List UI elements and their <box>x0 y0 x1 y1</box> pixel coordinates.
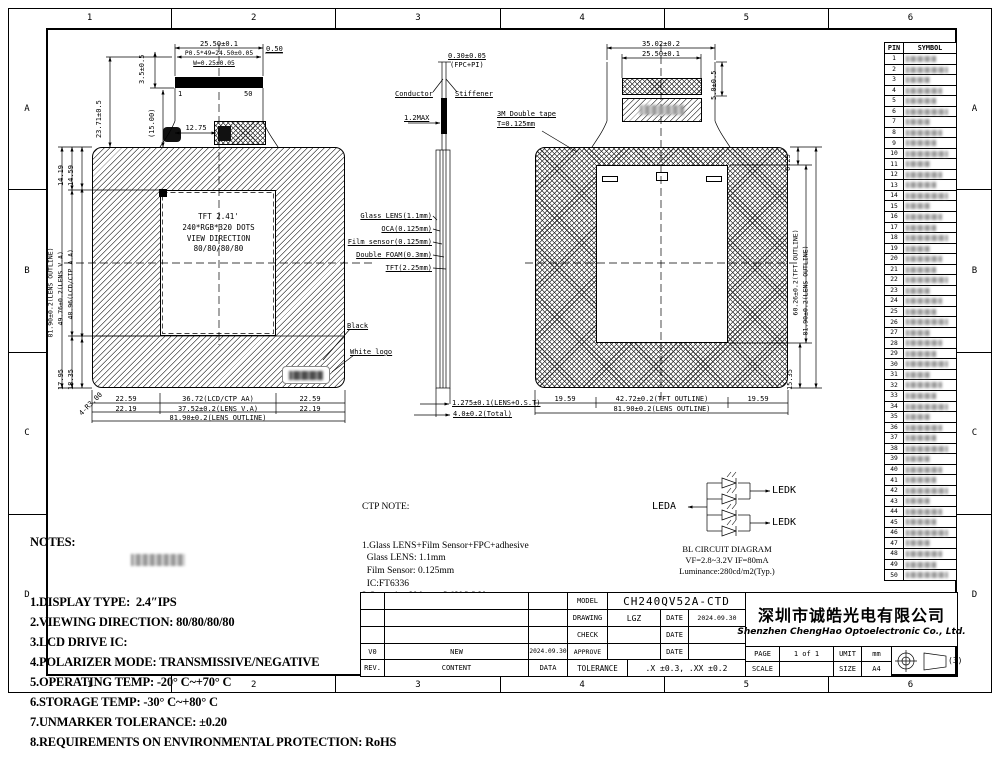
pin-header-cell: PIN <box>885 43 904 53</box>
pin-symbol-redacted-blur <box>906 172 942 178</box>
pin-symbol-cell <box>904 317 956 327</box>
scale-value-cell <box>779 661 834 677</box>
dim-rear-bottom-outline: 81.90±0.2(LENS OUTLINE) <box>614 405 711 413</box>
pin-number: 16 <box>885 212 904 222</box>
pin-row: 22 <box>885 275 956 286</box>
pin-symbol-redacted-blur <box>906 67 948 73</box>
pin-symbol-redacted-blur <box>906 140 936 146</box>
dim-rear-right-top: 6.25 <box>784 154 792 171</box>
rev-table-cell-empty <box>384 592 529 610</box>
layer-callout-label: Glass LENS(1.1mm) <box>330 210 432 223</box>
bl-circuit-spec: VF=2.8~3.2V IF=80mA <box>685 555 768 566</box>
pin-number: 32 <box>885 380 904 390</box>
pin-number: 19 <box>885 244 904 254</box>
pin-symbol-cell <box>904 86 956 96</box>
engineering-drawing-sheet: { "frame": { "cols": ["1","2","3","4","5… <box>0 0 1000 701</box>
pin-number: 22 <box>885 275 904 285</box>
pin-symbol-cell <box>904 538 956 548</box>
pin-row: 15 <box>885 201 956 212</box>
pin-symbol-redacted-blur <box>906 372 930 378</box>
rev-table-cell-empty <box>384 609 529 627</box>
pin-number: 35 <box>885 412 904 422</box>
pin-symbol-redacted-blur <box>906 414 930 420</box>
pin-row: 1 <box>885 54 956 65</box>
front-panel-text: TFT 2.41'240*RGB*320 DOTSVIEW DIRECTION8… <box>161 212 276 255</box>
rev-content-cell: NEW <box>384 643 529 660</box>
dim-side-top: 0.30±0.05 <box>448 52 486 60</box>
dim-rear-fpc-h: 5.0±0.5 <box>710 71 718 101</box>
dim-bottom-r2c: 37.52±0.2(LENS V.A) <box>178 405 258 413</box>
dim-top-left-2: 14.59 <box>67 165 75 186</box>
pin-symbol-cell <box>904 349 956 359</box>
dim-top-width: 25.50±0.1 <box>200 40 238 48</box>
dim-side-bottom2: 4.0±0.2(Total) <box>453 410 512 418</box>
note-line: 7.UNMARKER TOLERANCE: ±0.20 <box>30 712 396 732</box>
pin-number: 43 <box>885 496 904 506</box>
pin-row: 19 <box>885 244 956 255</box>
pin-number: 28 <box>885 338 904 348</box>
pin-row: 28 <box>885 338 956 349</box>
pin-symbol-redacted-blur <box>906 256 942 262</box>
pin-row: 30 <box>885 359 956 370</box>
pin-row: 14 <box>885 191 956 202</box>
pin-row: 2 <box>885 65 956 76</box>
pin-symbol-cell <box>904 286 956 296</box>
dim-fpc-h1: 3.5±0.5 <box>138 55 146 85</box>
pin-symbol-cell <box>904 465 956 475</box>
drawing-date-cell: 2024.09.30 <box>688 609 746 627</box>
pin-symbol-redacted-blur <box>906 235 948 241</box>
pin-first-label: 1 <box>178 90 182 98</box>
tape-note-line1: 3M Double tape <box>497 110 556 118</box>
ctp-note-title: CTP NOTE: <box>362 501 529 514</box>
pin-number: 10 <box>885 149 904 159</box>
content-header-cell: CONTENT <box>384 659 529 677</box>
pin-number: 18 <box>885 233 904 243</box>
pin-symbol-redacted-blur <box>906 203 930 209</box>
pin-row: 33 <box>885 391 956 402</box>
rev-table-cell-empty <box>528 626 568 644</box>
pin-number: 39 <box>885 454 904 464</box>
model-value-cell: CH240QV52A-CTD <box>607 592 746 610</box>
pin-symbol-redacted-blur <box>906 267 936 273</box>
bl-circuit-linework <box>688 472 770 536</box>
pin-row: 49 <box>885 560 956 571</box>
pin-symbol-redacted-blur <box>906 498 930 504</box>
pin-symbol-cell <box>904 412 956 422</box>
pin-symbol-cell <box>904 454 956 464</box>
model-label-cell: MODEL <box>567 592 608 610</box>
pin-row: 7 <box>885 117 956 128</box>
callout-black: Black <box>347 322 368 330</box>
pin-number: 12 <box>885 170 904 180</box>
dim-side-bottom1: 1.275±0.1(LENS+O.S.T) <box>452 399 541 407</box>
pin-symbol-redacted-blur <box>906 382 942 388</box>
pin-table-body: 1234567891011121314151617181920212223242… <box>885 54 956 581</box>
pin-symbol-redacted-blur <box>906 288 930 294</box>
projection-note: (3) <box>948 656 962 665</box>
pin-row: 39 <box>885 454 956 465</box>
pin-symbol-redacted-blur <box>906 435 936 441</box>
notes-title: NOTES: <box>30 532 396 552</box>
pin-row: 23 <box>885 286 956 297</box>
pin-number: 34 <box>885 402 904 412</box>
pin-symbol-cell <box>904 170 956 180</box>
pin-symbol-redacted-blur <box>906 572 948 578</box>
dim-pitch: P0.5*49=24.50±0.05 <box>185 50 253 57</box>
note-line: 6.STORAGE TEMP: -30° C~+80° C <box>30 692 396 712</box>
pin-symbol-cell <box>904 475 956 485</box>
front-panel-text-line: 240*RGB*320 DOTS <box>161 223 276 234</box>
pin-row: 5 <box>885 96 956 107</box>
symbol-header-cell: SYMBOL <box>904 43 956 53</box>
dim-fpc-h3: 23.71±0.5 <box>95 100 103 138</box>
tolerance-label-cell: TOLERANCE <box>567 659 628 677</box>
pin-row: 38 <box>885 444 956 455</box>
callout-stiffener: Stiffener <box>455 90 493 98</box>
pin-symbol-cell <box>904 359 956 369</box>
pin-symbol-redacted-blur <box>906 340 942 346</box>
pin-symbol-cell <box>904 75 956 85</box>
pin-symbol-cell <box>904 507 956 517</box>
pin-symbol-redacted-blur <box>906 361 948 367</box>
pin-symbol-cell <box>904 444 956 454</box>
dim-bottom-r1r: 22.59 <box>299 395 320 403</box>
pin-row: 20 <box>885 254 956 265</box>
pin-symbol-cell <box>904 233 956 243</box>
pin-row: 35 <box>885 412 956 423</box>
pin-row: 16 <box>885 212 956 223</box>
ledk-label-2: LEDK <box>772 517 796 529</box>
pin-symbol-cell <box>904 128 956 138</box>
dim-left-outline: 81.90±0.2(LENS OUTLINE) <box>48 247 55 337</box>
date-label-cell: DATE <box>660 643 689 660</box>
approve-date-cell <box>688 643 746 660</box>
data-header-cell: DATA <box>528 659 568 677</box>
pin-number: 14 <box>885 191 904 201</box>
umit-value-cell: mm <box>861 646 892 662</box>
pin-row: 46 <box>885 528 956 539</box>
pin-row: 17 <box>885 223 956 234</box>
pin-number: 50 <box>885 570 904 581</box>
dim-side-top-sub: (FPC+PI) <box>450 61 484 69</box>
dim-rear-right-tft: 60.26±0.2(TFT OUTLINE) <box>793 229 800 315</box>
pin-row: 13 <box>885 180 956 191</box>
pin-number: 29 <box>885 349 904 359</box>
dim-bot-left-2: 18.35 <box>67 369 75 390</box>
ledk-label-1: LEDK <box>772 485 796 497</box>
pin-row: 27 <box>885 328 956 339</box>
rev-number-cell: V0 <box>360 643 385 660</box>
layer-callout-label: OCA(0.125mm) <box>330 223 432 236</box>
company-name-en: Shenzhen ChengHao Optoelectronic Co., Lt… <box>737 627 965 637</box>
pin-symbol-table: PIN SYMBOL 12345678910111213141516171819… <box>884 42 957 581</box>
dim-end-offset: 0.50 <box>266 45 283 53</box>
pin-symbol-cell <box>904 391 956 401</box>
pin-symbol-cell <box>904 528 956 538</box>
pin-symbol-cell <box>904 54 956 64</box>
pin-symbol-cell <box>904 402 956 412</box>
pin-symbol-cell <box>904 296 956 306</box>
dim-rear-top2: 25.50±0.1 <box>642 50 680 58</box>
rev-table-cell-empty <box>360 592 385 610</box>
pin-number: 21 <box>885 265 904 275</box>
layer-callouts: Glass LENS(1.1mm)OCA(0.125mm)Film sensor… <box>330 210 432 275</box>
note-line: 5.OPERATING TEMP: -20° C~+70° C <box>30 672 396 692</box>
pin-symbol-cell <box>904 486 956 496</box>
tape-note-line2: T=0.125mm <box>497 120 535 128</box>
pin-symbol-cell <box>904 65 956 75</box>
pin-row: 43 <box>885 496 956 507</box>
pin-symbol-cell <box>904 433 956 443</box>
note-line: 1.DISPLAY TYPE: 2.4″IPS <box>30 592 396 612</box>
pin-row: 26 <box>885 317 956 328</box>
pin-row: 18 <box>885 233 956 244</box>
pin-symbol-cell <box>904 560 956 570</box>
layer-callout-label: TFT(2.25mm) <box>330 262 432 275</box>
pin-symbol-redacted-blur <box>906 425 942 431</box>
approve-label-cell: APPROVE <box>567 643 608 660</box>
pin-symbol-redacted-blur <box>906 56 936 62</box>
front-panel-text-line: 80/80/80/80 <box>161 244 276 255</box>
ctp-note-line: Film Sensor: 0.125mm <box>362 565 529 578</box>
pin-row: 34 <box>885 402 956 413</box>
pin-symbol-redacted-blur <box>906 562 936 568</box>
pin-symbol-redacted-blur <box>906 77 930 83</box>
pin-symbol-cell <box>904 117 956 127</box>
pin-number: 46 <box>885 528 904 538</box>
bl-circuit-luminance: Luminance:280cd/m2(Typ.) <box>679 566 774 577</box>
pin-symbol-cell <box>904 549 956 559</box>
pin-symbol-redacted-blur <box>906 246 930 252</box>
pin-row: 4 <box>885 86 956 97</box>
pin-number: 2 <box>885 65 904 75</box>
pin-symbol-redacted-blur <box>906 161 930 167</box>
pin-symbol-redacted-blur <box>906 446 948 452</box>
pin-number: 33 <box>885 391 904 401</box>
pin-row: 36 <box>885 423 956 434</box>
pin-row: 9 <box>885 138 956 149</box>
drawing-value-cell: LGZ <box>607 609 661 627</box>
pin-row: 47 <box>885 538 956 549</box>
date-label-cell: DATE <box>660 609 689 627</box>
pin-symbol-cell <box>904 138 956 148</box>
pin-number: 26 <box>885 317 904 327</box>
pin-symbol-redacted-blur <box>906 551 942 557</box>
pin-symbol-cell <box>904 244 956 254</box>
scale-label-cell: SCALE <box>745 661 780 677</box>
pin-symbol-cell <box>904 180 956 190</box>
dim-rear-bottom-l: 19.59 <box>554 395 575 403</box>
pin-symbol-cell <box>904 275 956 285</box>
pin-number: 47 <box>885 538 904 548</box>
pin-number: 13 <box>885 180 904 190</box>
pin-number: 31 <box>885 370 904 380</box>
pin-row: 25 <box>885 307 956 318</box>
pin-symbol-cell <box>904 517 956 527</box>
pin-number: 36 <box>885 423 904 433</box>
pin-number: 1 <box>885 54 904 64</box>
pin-symbol-cell <box>904 307 956 317</box>
front-panel-text-line: VIEW DIRECTION <box>161 234 276 245</box>
approve-value-cell <box>607 643 661 660</box>
pin-row: 44 <box>885 507 956 518</box>
callout-conductor: Conductor <box>395 90 433 98</box>
dim-bottom-r1l: 22.59 <box>115 395 136 403</box>
pin-symbol-cell <box>904 107 956 117</box>
dim-left-va: 49.76±0.2(LENS V.A) <box>58 251 65 325</box>
ctp-note-line: 1.Glass LENS+Film Sensor+FPC+adhesive <box>362 540 529 553</box>
pin-symbol-cell <box>904 201 956 211</box>
pin-symbol-cell <box>904 570 956 581</box>
pin-symbol-redacted-blur <box>906 225 936 231</box>
pin-symbol-redacted-blur <box>906 109 948 115</box>
pin-symbol-redacted-blur <box>906 277 948 283</box>
check-label-cell: CHECK <box>567 626 608 644</box>
pin-number: 6 <box>885 107 904 117</box>
ctp-note-line: Glass LENS: 1.1mm <box>362 552 529 565</box>
pin-symbol-cell <box>904 223 956 233</box>
pin-row: 10 <box>885 149 956 160</box>
pin-row: 21 <box>885 265 956 276</box>
pin-row: 24 <box>885 296 956 307</box>
pin-row: 40 <box>885 465 956 476</box>
rev-date-cell: 2024.09.30 <box>528 643 568 660</box>
pin-symbol-redacted-blur <box>906 88 942 94</box>
dim-pad-width: W=0.25±0.05 <box>193 60 235 67</box>
pin-number: 41 <box>885 475 904 485</box>
pin-symbol-redacted-blur <box>906 477 936 483</box>
pin-row: 3 <box>885 75 956 86</box>
pin-number: 8 <box>885 128 904 138</box>
date-label-cell: DATE <box>660 626 689 644</box>
pin-symbol-redacted-blur <box>906 151 948 157</box>
note-line: 3.LCD DRIVE IC: <box>30 632 396 652</box>
pin-symbol-redacted-blur <box>906 488 948 494</box>
pin-symbol-redacted-blur <box>906 393 936 399</box>
pin-row: 42 <box>885 486 956 497</box>
pin-symbol-cell <box>904 380 956 390</box>
dim-bottom-r2r: 22.19 <box>299 405 320 413</box>
pin-number: 3 <box>885 75 904 85</box>
layer-callout-label: Double FOAM(0.3mm) <box>330 249 432 262</box>
page-label-cell: PAGE <box>745 646 780 662</box>
pin-symbol-cell <box>904 328 956 338</box>
rev-header-cell: REV. <box>360 659 385 677</box>
pin-row: 32 <box>885 380 956 391</box>
dim-bottom-r2l: 22.19 <box>115 405 136 413</box>
pin-symbol-cell <box>904 338 956 348</box>
pin-symbol-redacted-blur <box>906 319 948 325</box>
size-label-cell: SIZE <box>833 661 862 677</box>
dim-max-thickness: 1.2MAX <box>404 114 429 122</box>
notes-items: 1.DISPLAY TYPE: 2.4″IPS2.VIEWING DIRECTI… <box>30 592 396 752</box>
front-panel-text-line: TFT 2.41' <box>161 212 276 223</box>
pin-number: 17 <box>885 223 904 233</box>
dim-rear-top1: 35.02±0.2 <box>642 40 680 48</box>
dim-rear-right-bot: 15.35 <box>786 369 794 390</box>
leda-label: LEDA <box>652 501 676 513</box>
notes-block: NOTES: 1.DISPLAY TYPE: 2.4″IPS2.VIEWING … <box>30 492 396 772</box>
pin-row: 45 <box>885 517 956 528</box>
note-line: 2.VIEWING DIRECTION: 80/80/80/80 <box>30 612 396 632</box>
pin-number: 49 <box>885 560 904 570</box>
pin-number: 42 <box>885 486 904 496</box>
pin-number: 40 <box>885 465 904 475</box>
pin-symbol-redacted-blur <box>906 456 930 462</box>
pin-symbol-redacted-blur <box>906 351 936 357</box>
dim-left-aa: 48.96(LCD/CTP A.A) <box>68 249 75 319</box>
dim-rear-bottom-c: 42.72±0.2(TFT OUTLINE) <box>616 395 709 403</box>
company-name-cn: 深圳市诚皓光电有限公司 <box>758 602 945 626</box>
umit-label-cell: UMIT <box>833 646 862 662</box>
pin-number: 45 <box>885 517 904 527</box>
pin-row: 6 <box>885 107 956 118</box>
pin-symbol-redacted-blur <box>906 309 936 315</box>
pin-symbol-redacted-blur <box>906 540 930 546</box>
bl-circuit-title: BL CIRCUIT DIAGRAM <box>682 544 771 555</box>
pin-symbol-redacted-blur <box>906 330 930 336</box>
pin-symbol-cell <box>904 212 956 222</box>
pin-symbol-cell <box>904 423 956 433</box>
pin-symbol-redacted-blur <box>906 298 942 304</box>
pin-row: 31 <box>885 370 956 381</box>
pin-number: 44 <box>885 507 904 517</box>
pin-symbol-redacted-blur <box>906 214 942 220</box>
note-line: 8.REQUIREMENTS ON ENVIRONMENTAL PROTECTI… <box>30 732 396 752</box>
pin-symbol-redacted-blur <box>906 130 942 136</box>
pin-number: 37 <box>885 433 904 443</box>
company-cell: 深圳市诚皓光电有限公司 Shenzhen ChengHao Optoelectr… <box>745 592 958 647</box>
pin-number: 7 <box>885 117 904 127</box>
pin-number: 5 <box>885 96 904 106</box>
pin-symbol-cell <box>904 191 956 201</box>
pin-symbol-redacted-blur <box>906 519 936 525</box>
pin-symbol-cell <box>904 370 956 380</box>
pin-symbol-cell <box>904 254 956 264</box>
pin-number: 30 <box>885 359 904 369</box>
pin-number: 11 <box>885 159 904 169</box>
pin-number: 25 <box>885 307 904 317</box>
pin-symbol-cell <box>904 265 956 275</box>
rear-fpc-redacted-label-blur <box>640 105 684 115</box>
pin-row: 37 <box>885 433 956 444</box>
rev-table-cell-empty <box>360 609 385 627</box>
pin-row: 8 <box>885 128 956 139</box>
pin-symbol-redacted-blur <box>906 509 942 515</box>
pin-symbol-cell <box>904 149 956 159</box>
pin-symbol-redacted-blur <box>906 467 942 473</box>
pin-number: 27 <box>885 328 904 338</box>
tolerance-value-cell: .X ±0.3, .XX ±0.2 <box>627 659 746 677</box>
dim-rear-bottom-r: 19.59 <box>747 395 768 403</box>
rev-table-cell-empty <box>384 626 529 644</box>
lcd-ic-redacted-blur <box>131 554 185 566</box>
pin-row: 41 <box>885 475 956 486</box>
pin-number: 15 <box>885 201 904 211</box>
page-value-cell: 1 of 1 <box>779 646 834 662</box>
dim-bottom-outline: 81.90±0.2(LENS OUTLINE) <box>170 414 267 422</box>
rev-table-cell-empty <box>528 592 568 610</box>
pin-symbol-cell <box>904 96 956 106</box>
pin-symbol-redacted-blur <box>906 182 936 188</box>
pin-symbol-cell <box>904 159 956 169</box>
ctp-note-line: IC:FT6336 <box>362 578 529 591</box>
dim-bottom-r1c: 36.72(LCD/CTP AA) <box>182 395 254 403</box>
dim-fpc-h2: (15.00) <box>148 109 156 139</box>
pin-row: 50 <box>885 570 956 581</box>
rev-table-cell-empty <box>528 609 568 627</box>
